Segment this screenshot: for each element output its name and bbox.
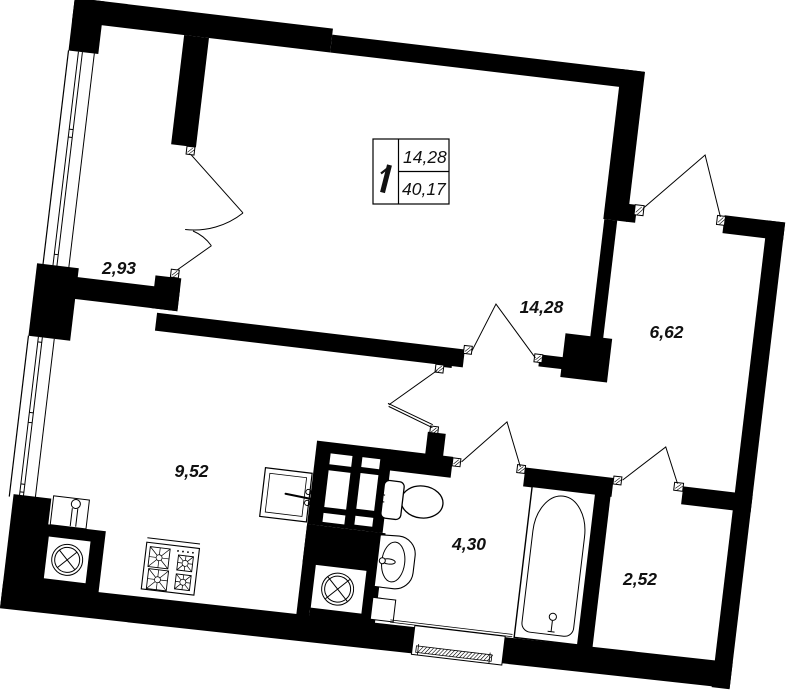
svg-text:14,28: 14,28 — [403, 147, 447, 167]
svg-text:2,93: 2,93 — [101, 258, 136, 278]
svg-text:40,17: 40,17 — [402, 179, 447, 199]
svg-text:14,28: 14,28 — [520, 297, 564, 317]
svg-text:4,30: 4,30 — [451, 534, 486, 554]
svg-text:2,52: 2,52 — [622, 569, 657, 589]
svg-text:6,62: 6,62 — [649, 322, 683, 342]
svg-text:9,52: 9,52 — [174, 461, 208, 481]
